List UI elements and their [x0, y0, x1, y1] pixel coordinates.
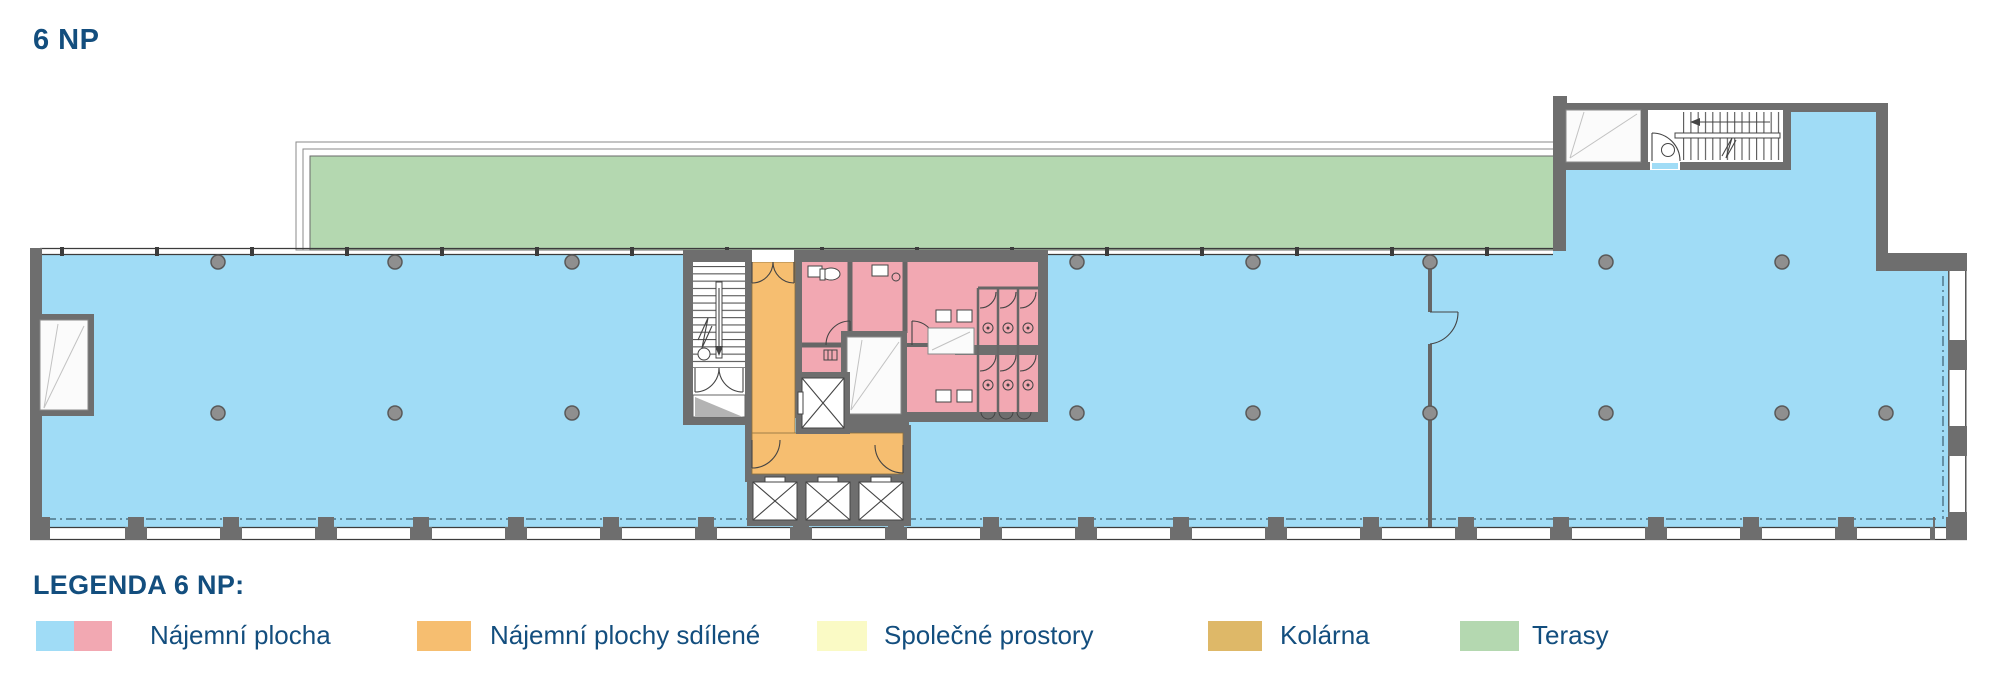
south-pillars [120, 517, 1935, 540]
terrace-door-opening [752, 250, 794, 262]
sink-icon [957, 310, 972, 322]
sanitary-block [796, 262, 1038, 434]
terraces-swatch-color [1460, 621, 1519, 651]
legend-label: Terasy [1532, 620, 1609, 651]
elevator-bank [747, 476, 911, 526]
bike-room-swatch [1208, 621, 1262, 651]
shared-lobby-area [752, 433, 903, 474]
rental-swatch-blue [36, 621, 74, 651]
east-facade [1948, 271, 1967, 540]
rental-swatch-pink [74, 621, 112, 651]
service-elevator [796, 372, 850, 434]
terraces-swatch [1460, 621, 1519, 651]
bike-room-swatch-color [1208, 621, 1262, 651]
core-shaft-room [847, 337, 901, 414]
elevator-shaft [806, 477, 850, 520]
elevator-shaft [859, 477, 903, 520]
legend-label: Nájemní plocha [150, 620, 331, 651]
legend-item-shared: Nájemní plochy sdílené [417, 620, 760, 651]
legend-label: Společné prostory [884, 620, 1094, 651]
legend-label: Nájemní plochy sdílené [490, 620, 760, 651]
legend-item-rental: Nájemní plocha [36, 620, 331, 651]
legend-label: Kolárna [1280, 620, 1370, 651]
elevator-shaft [753, 477, 797, 520]
core-stairwell [693, 262, 745, 417]
sink-icon [872, 265, 888, 276]
legend-heading: LEGENDA 6 NP: [33, 570, 244, 601]
legend-item-bike-room: Kolárna [1208, 620, 1370, 651]
shared-swatch-color [417, 621, 471, 651]
sink-icon [936, 310, 951, 322]
common-swatch [817, 621, 867, 651]
rental-swatch [36, 621, 112, 651]
floor-plan [0, 0, 2000, 698]
shared-swatch [417, 621, 471, 651]
sink-icon [957, 390, 972, 402]
south-facade [30, 517, 1967, 540]
sink-icon [936, 390, 951, 402]
common-swatch-color [817, 621, 867, 651]
north-east-corner-wall [1876, 253, 1967, 271]
stair-symbol-circle [698, 348, 710, 360]
legend-item-common: Společné prostory [817, 620, 1094, 651]
legend-item-terraces: Terasy [1460, 620, 1609, 651]
upper-stair-symbol [1662, 144, 1675, 157]
terrace-surface [310, 156, 1554, 250]
terrace [296, 142, 1554, 250]
east-pillars [1948, 340, 1967, 540]
upper-stair-rail [1675, 133, 1780, 138]
